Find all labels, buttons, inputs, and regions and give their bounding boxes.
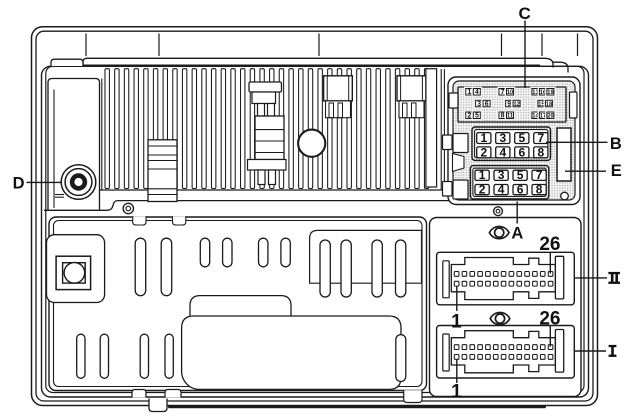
svg-text:1: 1 <box>451 311 462 332</box>
svg-text:D: D <box>13 175 25 193</box>
svg-text:11: 11 <box>507 114 514 120</box>
svg-text:C: C <box>519 4 531 23</box>
svg-text:8: 8 <box>536 182 543 196</box>
svg-text:9: 9 <box>507 101 511 108</box>
svg-text:20: 20 <box>547 114 554 120</box>
svg-text:5: 5 <box>475 113 479 120</box>
svg-text:3: 3 <box>499 131 506 145</box>
svg-text:7: 7 <box>501 89 505 96</box>
svg-text:A: A <box>511 224 523 242</box>
svg-text:5: 5 <box>518 131 525 145</box>
svg-text:1: 1 <box>467 89 471 96</box>
svg-text:1: 1 <box>480 131 487 145</box>
svg-text:6: 6 <box>517 182 524 196</box>
svg-text:8: 8 <box>501 113 505 120</box>
svg-text:2: 2 <box>467 113 471 120</box>
svg-text:E: E <box>611 162 622 180</box>
svg-text:5: 5 <box>517 168 524 182</box>
svg-text:19: 19 <box>547 90 554 96</box>
svg-text:6: 6 <box>518 146 525 160</box>
svg-text:1: 1 <box>451 381 462 402</box>
svg-text:8: 8 <box>537 146 544 160</box>
svg-text:3: 3 <box>477 101 481 108</box>
svg-text:4: 4 <box>498 182 505 196</box>
svg-text:7: 7 <box>537 131 544 145</box>
svg-text:B: B <box>610 135 622 153</box>
svg-text:1: 1 <box>479 168 486 182</box>
svg-text:18: 18 <box>546 102 553 108</box>
svg-text:4: 4 <box>499 146 506 160</box>
svg-text:7: 7 <box>536 168 543 182</box>
svg-text:10: 10 <box>507 90 514 96</box>
svg-text:2: 2 <box>479 182 486 196</box>
svg-text:6: 6 <box>485 101 489 108</box>
svg-text:2: 2 <box>480 146 487 160</box>
svg-text:12: 12 <box>514 102 521 108</box>
svg-text:4: 4 <box>475 89 479 96</box>
svg-text:3: 3 <box>498 168 505 182</box>
